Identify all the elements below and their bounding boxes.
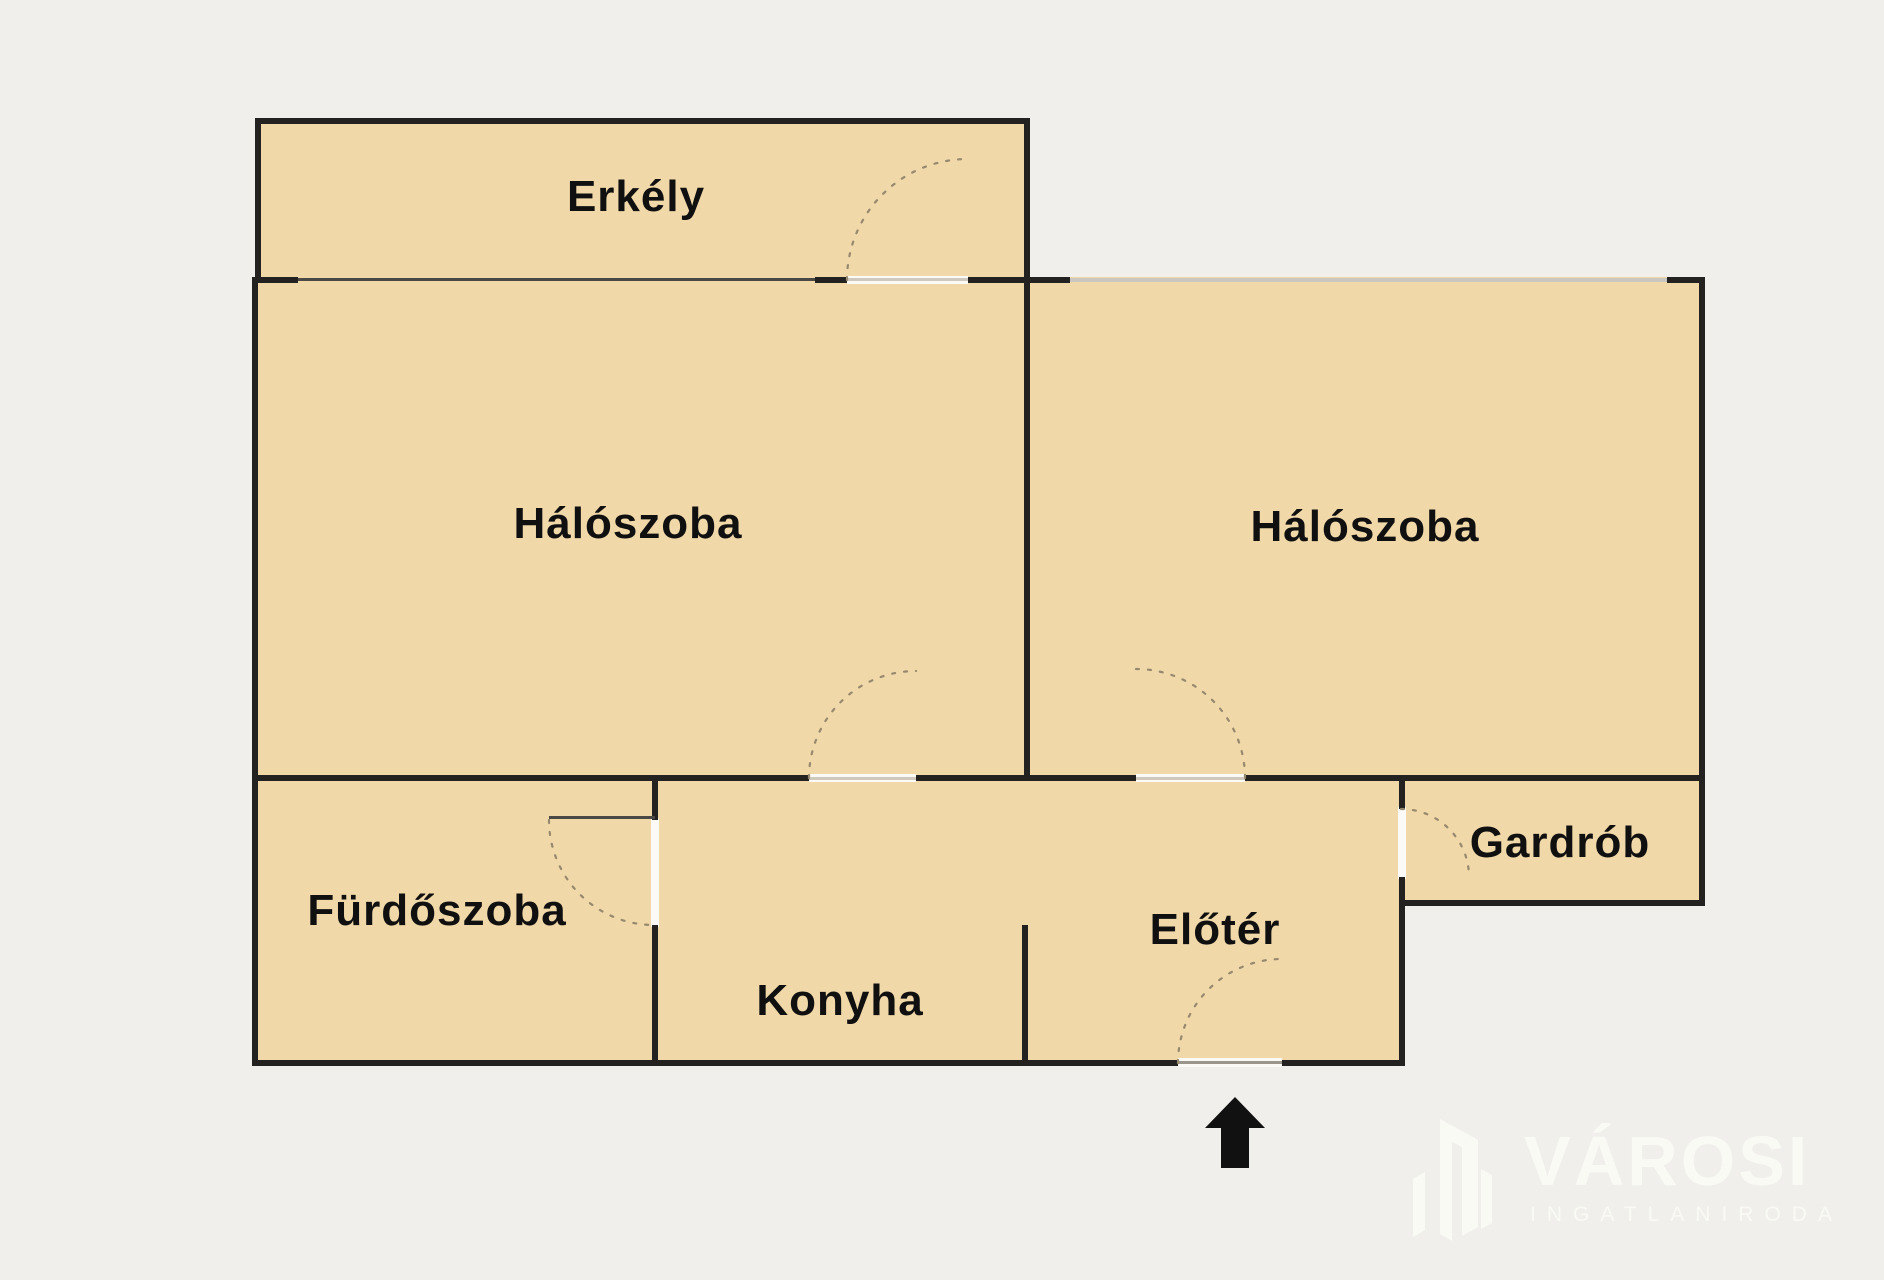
wall-outer-right <box>1699 277 1705 906</box>
bedroom-right-door-threshold <box>1136 777 1245 780</box>
wall-wardrobe-bottom <box>1399 900 1705 906</box>
room-label-foyer: Előtér <box>1150 905 1281 955</box>
wall-balcony-left <box>255 118 261 283</box>
bathroom-door-leaf <box>549 816 655 819</box>
wall-balcony-top <box>255 118 1030 124</box>
wall-bedrooms-bottom-c <box>1245 775 1705 781</box>
floorplan-drawing <box>0 0 1884 1280</box>
room-label-bathroom: Fürdőszoba <box>307 886 566 936</box>
wall-bedrooms-bottom-b <box>916 775 1136 781</box>
wall-kitchen-foyer-divider <box>1022 925 1028 1060</box>
watermark-subtitle: INGATLANIRODA <box>1530 1204 1843 1225</box>
wall-bedroom-divider <box>1024 118 1030 781</box>
logo-building-bar-left <box>1413 1172 1425 1237</box>
room-label-wardrobe: Gardrób <box>1470 818 1651 868</box>
wardrobe-door-opening <box>1398 807 1406 879</box>
wall-bedrooms-bottom-a <box>252 775 809 781</box>
wall-outer-bottom-a <box>252 1060 1178 1066</box>
wall-wardrobe-left-top <box>1399 781 1405 809</box>
window-line-bedroom-right <box>1070 278 1667 282</box>
room-label-bedroom-left: Hálószoba <box>513 499 742 549</box>
watermark-brand: VÁROSI <box>1524 1126 1810 1196</box>
wall-wardrobe-left-bottom <box>1399 877 1405 906</box>
entrance-door-threshold <box>1178 1061 1282 1064</box>
window-line-balcony-wall <box>298 278 815 281</box>
logo-building-tower-right <box>1462 1131 1478 1236</box>
wall-bathroom-right-bottom <box>652 925 658 1066</box>
bathroom-door-opening <box>651 818 659 927</box>
room-label-balcony: Erkély <box>567 172 705 222</box>
wall-stub-balcony-door-left <box>815 277 847 283</box>
wall-stub-balcony-door-right <box>968 277 1070 283</box>
room-label-kitchen: Konyha <box>756 976 923 1026</box>
wall-foyer-right <box>1399 900 1405 1066</box>
wall-outer-bottom-b <box>1282 1060 1405 1066</box>
logo-building-bar-right <box>1481 1169 1492 1229</box>
wall-bathroom-right-top <box>652 781 658 820</box>
wall-stub-top-left <box>252 277 298 283</box>
wall-outer-left <box>252 277 258 1066</box>
room-label-bedroom-right: Hálószoba <box>1250 502 1479 552</box>
bedroom-left-door-threshold <box>809 777 916 780</box>
floorplan-page: Erkély Hálószoba Hálószoba Fürdőszoba Ko… <box>0 0 1884 1280</box>
balcony-door-threshold <box>847 278 968 281</box>
